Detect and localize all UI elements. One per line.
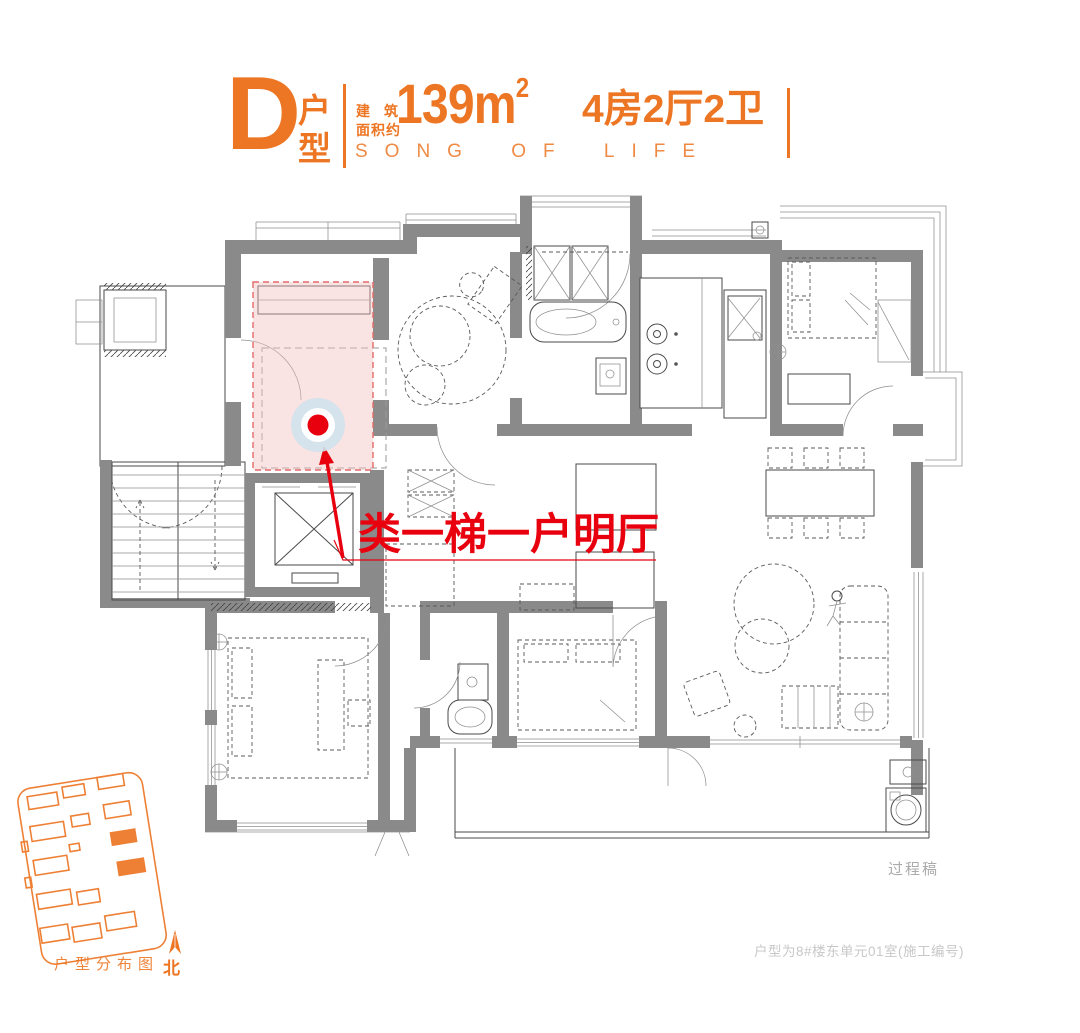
draft-watermark: 过程稿 xyxy=(888,858,939,879)
site-plan-sketch xyxy=(11,771,168,967)
north-label: 北 xyxy=(163,954,180,979)
living-room xyxy=(683,564,888,737)
highlight-annotation: 类一梯一户明厅 xyxy=(358,500,659,562)
floorplan-sheet: D 户 型 建筑 面积约 139m2 4房2厅2卫 SONG OF LIFE xyxy=(0,0,1080,1033)
unit-number-note: 户型为8#楼东单元01室(施工编号) xyxy=(754,940,964,960)
sitemap-caption: 户型分布图 xyxy=(54,953,159,974)
master-bedroom xyxy=(211,613,388,780)
north-compass xyxy=(169,930,181,954)
bedroom-2 xyxy=(518,615,655,730)
elevator-lobby xyxy=(76,283,225,528)
bedroom-top-right xyxy=(770,258,911,436)
dining-area xyxy=(766,448,874,538)
location-dot xyxy=(291,398,345,452)
elevator-shaft xyxy=(245,473,370,597)
stairwell xyxy=(100,460,250,608)
entry-bathroom xyxy=(526,246,630,394)
person-figure xyxy=(827,591,846,626)
balcony xyxy=(455,748,929,838)
study-room xyxy=(398,255,522,485)
